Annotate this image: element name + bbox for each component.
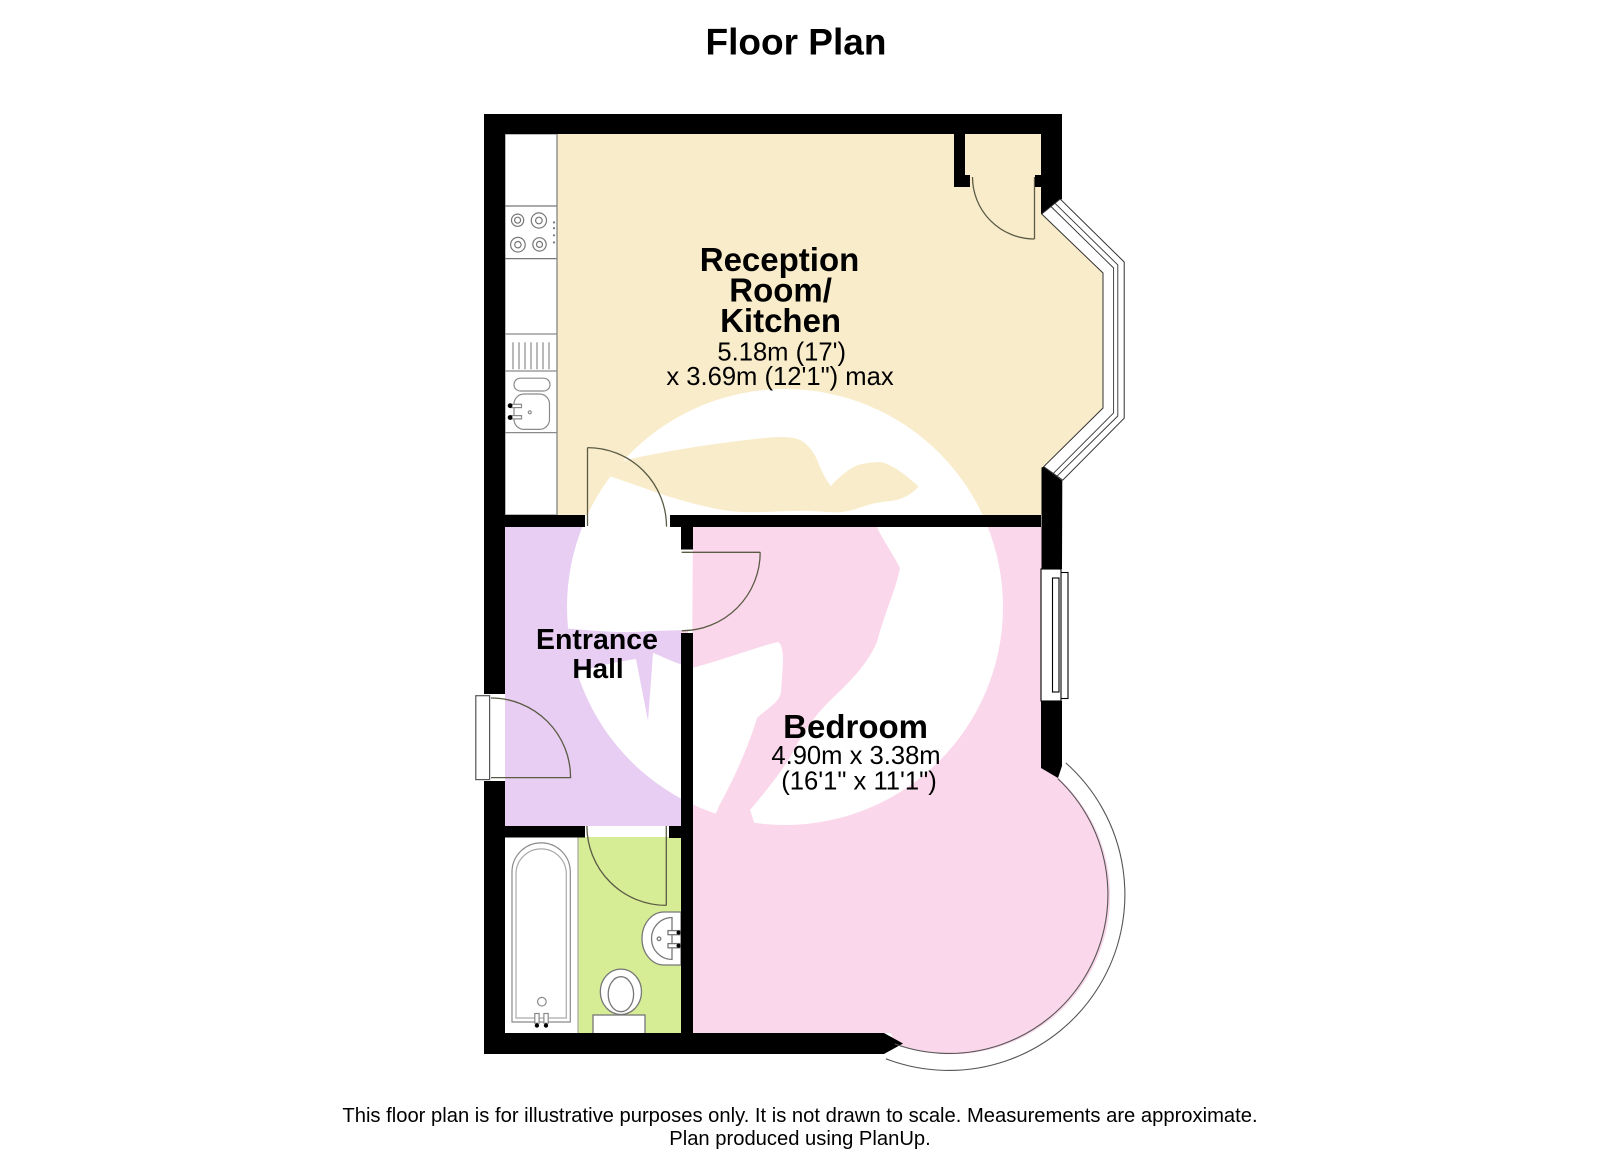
svg-text:Hall: Hall [572, 653, 623, 684]
svg-text:5.18m (17'): 5.18m (17') [717, 338, 846, 366]
svg-text:Plan produced using PlanUp.: Plan produced using PlanUp. [669, 1128, 931, 1150]
svg-text:(16'1" x 11'1"): (16'1" x 11'1") [781, 768, 937, 796]
svg-text:Bedroom: Bedroom [783, 708, 928, 745]
svg-text:Entrance: Entrance [536, 624, 658, 656]
svg-text:Floor Plan: Floor Plan [706, 22, 887, 63]
svg-text:This floor plan is for illustr: This floor plan is for illustrative purp… [342, 1105, 1257, 1127]
svg-text:Kitchen: Kitchen [720, 302, 841, 339]
svg-text:x 3.69m (12'1") max: x 3.69m (12'1") max [666, 363, 894, 391]
svg-text:4.90m x 3.38m: 4.90m x 3.38m [771, 742, 940, 770]
